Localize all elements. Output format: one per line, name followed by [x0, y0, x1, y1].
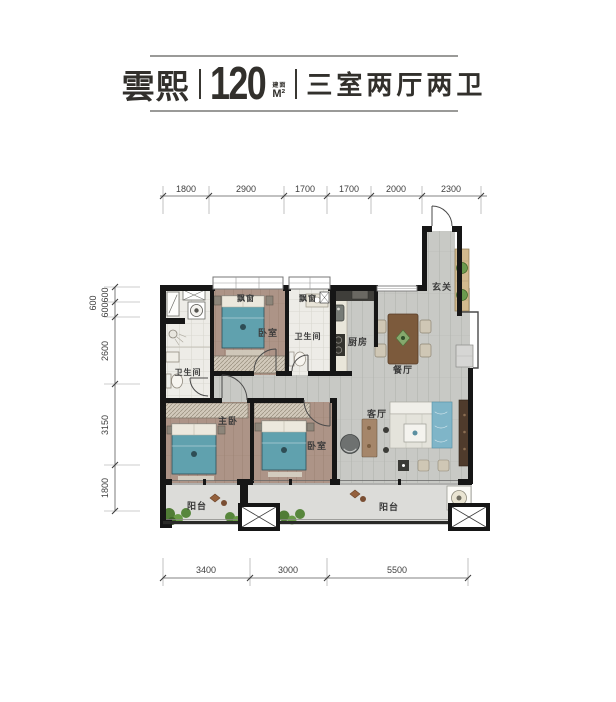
sofa-blue-throw [432, 402, 452, 448]
dim-bottom-2: 5500 [387, 565, 407, 575]
dim-bottom-1: 3000 [278, 565, 298, 575]
pot-icon [221, 500, 227, 506]
wardrobe [211, 356, 285, 373]
corridor-floor [210, 375, 337, 402]
dimension-top: 1800 2900 1700 1700 2000 2300 [160, 184, 487, 214]
dim-left-0: 600 [100, 287, 110, 302]
dim-top-5: 2300 [441, 184, 461, 194]
armchair [341, 435, 360, 454]
shower-icon [169, 330, 177, 338]
floorplan: 飘窗 飘窗 卧室 卫生间 厨房 玄关 餐厅 卫生间 主卧 卧室 客厅 阳台 阳台… [0, 0, 616, 702]
label-balcony-right: 阳台 [379, 501, 399, 512]
dim-top-4: 2000 [386, 184, 406, 194]
label-living: 客厅 [366, 408, 387, 419]
label-kitchen: 厨房 [348, 336, 368, 347]
label-bedroom-mid: 卧室 [307, 440, 327, 451]
nightstand [218, 426, 225, 434]
dim-left-2: 2600 [100, 341, 110, 361]
label-dining: 餐厅 [392, 364, 413, 375]
dim-left-outer: 600 [88, 295, 98, 310]
label-bedroom-top: 卧室 [258, 327, 278, 338]
plant-icon [295, 509, 305, 519]
label-master-bedroom: 主卧 [218, 415, 238, 426]
dim-left-4: 1800 [100, 478, 110, 498]
dimension-bottom: 3400 3000 5500 [160, 558, 471, 586]
sink-icon [166, 352, 179, 362]
nightstand [307, 423, 314, 431]
wardrobe [254, 403, 310, 418]
dining-chair [420, 320, 431, 333]
dining-chair [420, 344, 431, 357]
label-bathroom-top: 卫生间 [295, 331, 322, 341]
nightstand [255, 423, 262, 431]
side-console [362, 419, 377, 457]
bedroom-mid-furniture [254, 403, 314, 477]
kitchen-appliance [352, 290, 368, 299]
rug [268, 472, 302, 477]
label-bathroom-left: 卫生间 [175, 367, 202, 377]
stool [383, 427, 389, 433]
stool [383, 447, 389, 453]
label-entry: 玄关 [432, 281, 452, 292]
pot-icon [360, 496, 366, 502]
label-bay-window-top: 飘窗 [237, 293, 255, 303]
chair [418, 460, 429, 471]
entry-door-swing [432, 206, 452, 226]
balcony-right-floor [278, 483, 472, 524]
chair [438, 460, 449, 471]
toilet-icon [295, 352, 306, 366]
dim-top-1: 2900 [236, 184, 256, 194]
dim-top-3: 1700 [339, 184, 359, 194]
label-balcony-left: 阳台 [187, 500, 207, 511]
dim-bottom-0: 3400 [196, 565, 216, 575]
label-bay-window-mid: 飘窗 [299, 293, 317, 303]
dim-top-0: 1800 [176, 184, 196, 194]
nightstand [266, 296, 273, 305]
balcony-railing [163, 521, 472, 524]
dimension-left: 600 600 2600 3150 1800 600 [88, 284, 140, 514]
nightstand [214, 296, 221, 305]
dim-left-1: 600 [100, 302, 110, 317]
dim-top-2: 1700 [295, 184, 315, 194]
dim-left-3: 3150 [100, 415, 110, 435]
